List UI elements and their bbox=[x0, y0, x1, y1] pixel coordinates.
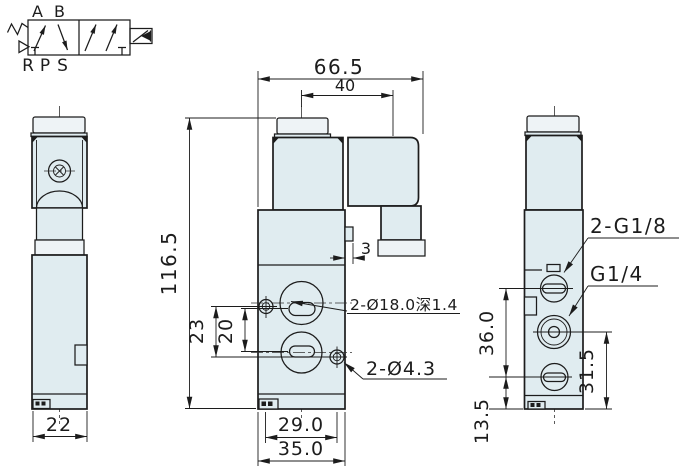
solenoid-actuator-icon bbox=[130, 29, 152, 44]
coil-body bbox=[273, 138, 343, 211]
dim-bottom-offset: 13.5 bbox=[471, 398, 493, 444]
dim-tab-width: 3 bbox=[361, 239, 371, 258]
port-r-label: R bbox=[22, 56, 34, 76]
coil-body bbox=[526, 136, 582, 211]
valve-body bbox=[32, 255, 87, 409]
coil-body bbox=[32, 137, 87, 209]
valve-body bbox=[258, 210, 345, 409]
dim-body-width: 22 bbox=[46, 414, 72, 436]
dim-port-span: 36.0 bbox=[476, 310, 498, 356]
port-b-label: B bbox=[54, 2, 65, 21]
base-foot bbox=[33, 400, 50, 409]
valve-dimensional-drawing: A B R P S bbox=[0, 0, 680, 476]
center-port-label: G1/4 bbox=[590, 262, 644, 286]
dim-recess-span-v: 20 bbox=[215, 318, 237, 344]
ribbed-band bbox=[35, 240, 84, 255]
port-s-label: S bbox=[57, 56, 68, 76]
valve-schematic: A B R P S bbox=[8, 2, 153, 76]
mid-section bbox=[37, 208, 83, 240]
flow-path-arrows bbox=[34, 25, 117, 52]
dim-hole-span-h: 29.0 bbox=[278, 414, 324, 436]
right-side-view: 36.0 13.5 31.5 2-G1/8 G1/4 bbox=[471, 106, 679, 444]
din-connector bbox=[348, 138, 425, 257]
dim-base-width: 35.0 bbox=[278, 438, 324, 460]
cable-gland-ribbed bbox=[378, 240, 425, 256]
dim-lower-port-height: 31.5 bbox=[576, 348, 598, 394]
port-p-label: P bbox=[40, 56, 50, 76]
base-foot bbox=[528, 402, 545, 410]
side-tab bbox=[345, 227, 353, 241]
side-notch bbox=[75, 345, 87, 365]
port-a-label: A bbox=[32, 2, 43, 21]
mount-hole-callout: 2-Ø4.3 bbox=[344, 358, 447, 380]
front-view: 66.5 40 116.5 23 20 bbox=[157, 55, 460, 466]
mount-hole-label: 2-Ø4.3 bbox=[366, 358, 436, 380]
drawing-canvas: A B R P S bbox=[0, 0, 680, 476]
dim-overall-height: 116.5 bbox=[157, 231, 181, 296]
coil-cap-ribbed bbox=[527, 116, 579, 132]
connector-arm bbox=[348, 138, 419, 207]
left-side-view: 22 bbox=[31, 106, 87, 442]
dim-coil-width: 40 bbox=[335, 76, 355, 95]
side-port-label: 2-G1/8 bbox=[590, 214, 667, 238]
dim-hole-span-v: 23 bbox=[186, 318, 208, 344]
side-recess bbox=[525, 297, 537, 315]
dimension-width-22: 22 bbox=[33, 411, 87, 442]
base-foot bbox=[259, 399, 278, 409]
connector-neck bbox=[381, 206, 421, 240]
spring-icon bbox=[8, 24, 29, 35]
port-boss bbox=[547, 265, 560, 272]
recess-label: 2-Ø18.0深1.4 bbox=[350, 296, 458, 314]
coil-cap-ribbed bbox=[33, 117, 85, 133]
coil-cap-ribbed bbox=[277, 118, 328, 134]
dimension-bottom-offset: 13.5 bbox=[471, 377, 523, 444]
